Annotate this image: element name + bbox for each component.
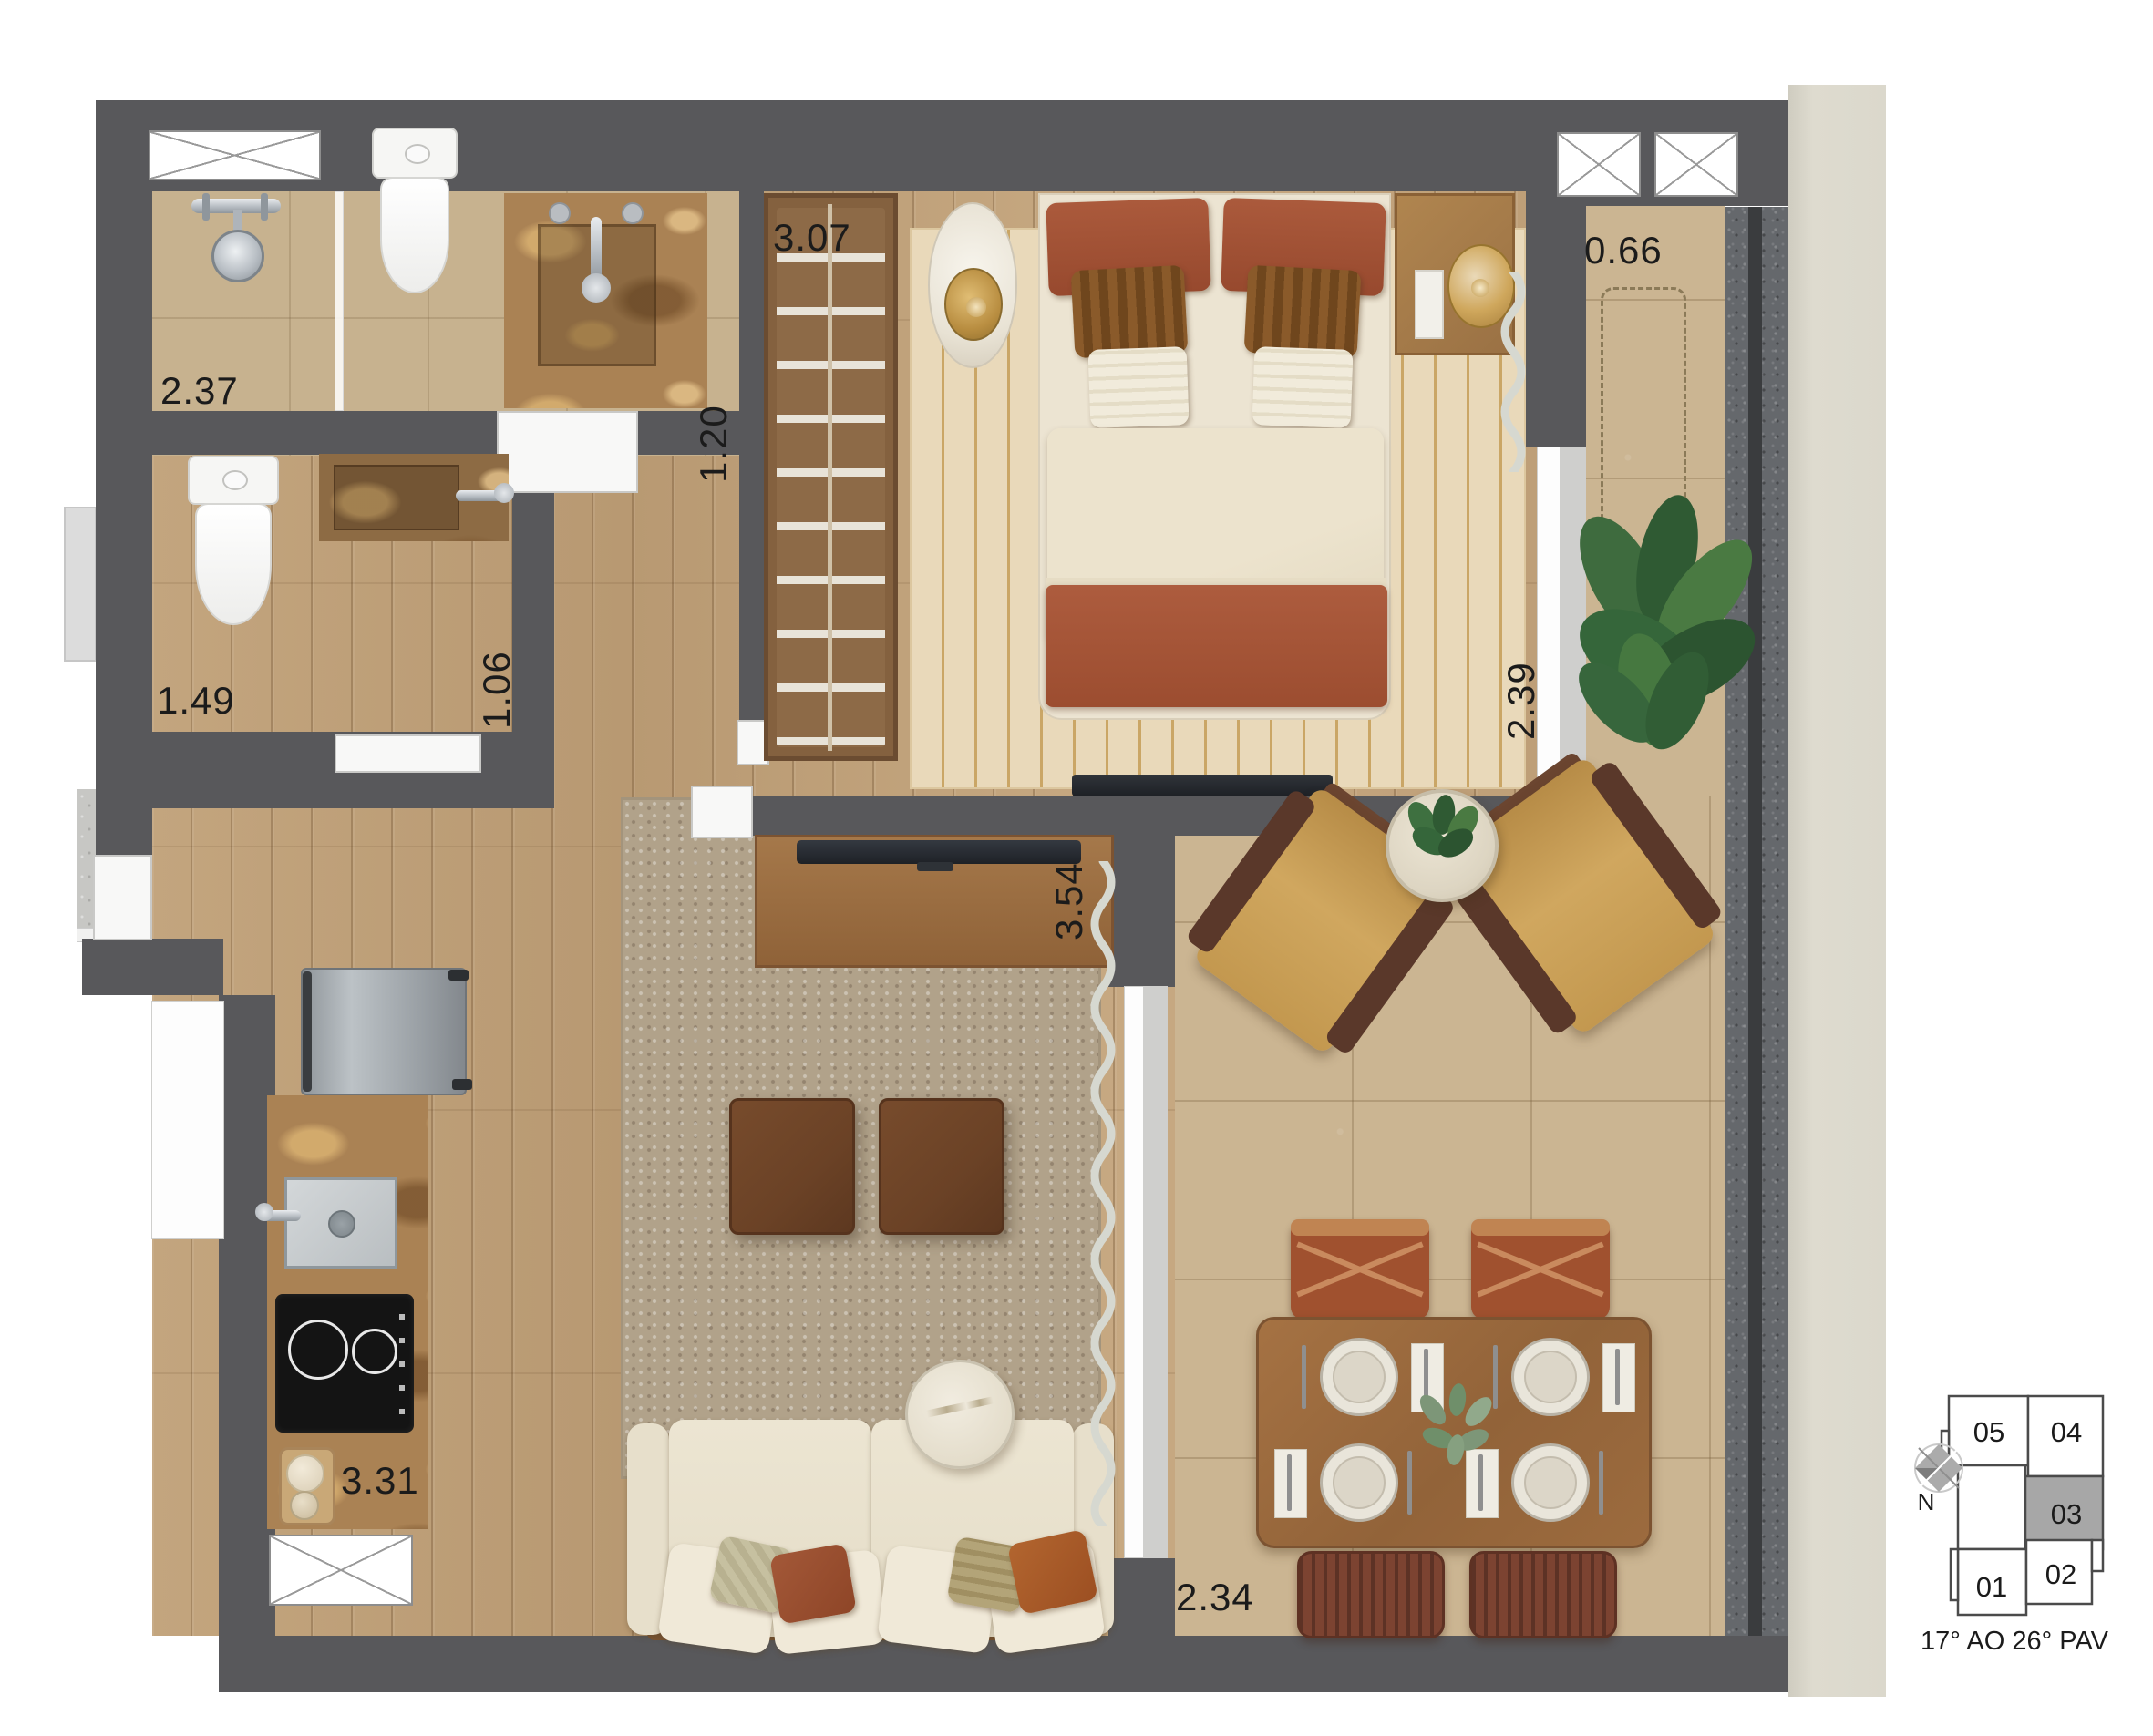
dim-bath-passage: 1.20 [695,405,733,483]
living-terrace-door-frame [1144,986,1168,1558]
dining-chair-top-right [1471,1219,1610,1320]
dim-closet: 3.07 [773,219,851,257]
vanity-faucet-base [582,273,611,303]
dim-terrace: 2.34 [1176,1578,1254,1617]
dining-chair-top-bar [1471,1219,1610,1236]
bathroom-door [497,411,638,493]
keyplan-unit-02-step [2092,1540,2103,1571]
shower-glass-divider [335,191,344,411]
floor-plan-page: 2.37 1.20 3.07 0.66 1.49 1.06 3.54 2.39 … [0,0,2153,1736]
shaft-box-kitchen [269,1535,413,1606]
fridge [301,968,467,1095]
shower-hook-left [202,193,210,221]
facade-granite-groove [1748,207,1762,1692]
keyplan-caption: 17° AO 26° PAV [1921,1627,2109,1656]
toilet-suite-bowl [380,177,449,293]
keyplan-north-label: N [1918,1488,1935,1515]
bedroom-balcony-glass-door [1537,447,1561,796]
bedroom-curtain [1495,272,1531,472]
keyplan-unit-label: 04 [2051,1416,2082,1448]
dim-living: 3.54 [1050,862,1088,940]
kitchen-window [151,1001,224,1239]
keyplan: 05 04 03 02 01 N 17° AO 26° PAV [1901,1378,2128,1669]
keyplan-unit-label: 02 [2045,1558,2076,1590]
toilet-lavabo-bowl [195,503,272,625]
dim-shower: 2.37 [160,372,239,410]
dinner-plate-inner [1524,1351,1577,1403]
wall-balcony-stub [1526,191,1586,447]
dinner-plate-inner [1524,1456,1577,1509]
bed-pillow-pattern-left [1071,265,1189,358]
shaft-box-bathroom [149,130,321,180]
wall-terrace-stub-bottom [1108,1558,1175,1637]
spoon [1615,1349,1620,1405]
kitchen-bowl-small [290,1491,319,1520]
dinner-plate-inner [1333,1351,1386,1403]
bed-throw [1046,585,1387,707]
keyplan-compass [1915,1444,1962,1492]
toilet-lavabo-button [222,470,248,490]
fork [1302,1345,1306,1409]
wall-bath-closet-divider [739,191,764,761]
shaft-box-balcony-2 [1654,132,1738,197]
sofa [627,1414,1114,1642]
lavabo-basin [334,465,459,530]
bed-pillow-white-left [1088,346,1190,428]
keyplan-corridor-shape [1958,1465,2025,1549]
lavabo-door [335,734,481,773]
bed [1038,193,1391,720]
wall-left [96,100,152,939]
pouf-left [729,1098,855,1235]
fridge-hinge-bottom [452,1079,472,1090]
vanity-knob-right [622,202,644,224]
wardrobe-rail [828,204,832,751]
living-terrace-glass-door [1124,986,1144,1558]
dining-chair-top-bar [1291,1219,1429,1236]
living-tv [797,840,1081,864]
spoon [1478,1454,1483,1511]
living-curtain [1085,861,1121,1526]
dim-kitchen: 3.31 [341,1462,419,1500]
dining-bench-right [1469,1551,1617,1638]
wall-bath-south-left [152,411,497,455]
toilet-suite-button [405,144,430,164]
living-tv-mount [917,862,953,871]
kitchen-bowl-large [286,1454,324,1493]
shower-head [211,230,264,282]
kitchen-sink-drain [328,1210,355,1238]
pouf-right [879,1098,1004,1235]
bed-pillow-white-right [1252,346,1354,428]
bed-pillow-pattern-right [1244,265,1362,358]
shower-hook-right [261,193,268,221]
fridge-handle [303,971,312,1092]
cooktop-burner-small [352,1329,397,1374]
sofa-side-table [905,1360,1015,1469]
dim-lavabo: 1.49 [157,682,235,720]
lavabo-faucet-base [494,483,514,503]
dim-lavabo-width: 1.06 [478,651,516,729]
sofa-pillow-rust [769,1543,857,1624]
keyplan-unit-label: 01 [1976,1571,2007,1603]
dining-table [1256,1317,1652,1548]
dining-bench-left [1297,1551,1445,1638]
fork [1493,1345,1498,1409]
vanity-knob-left [549,202,571,224]
dinner-plate-inner [1333,1456,1386,1509]
nightstand-switch [1415,270,1444,339]
dim-bedroom: 2.39 [1502,662,1540,740]
dining-chair-top-left [1291,1219,1429,1320]
keyplan-unit-01-notch [1951,1549,1958,1600]
nightstand-lamp-bulb [1471,279,1489,297]
wall-entry-jog [82,939,223,995]
cooktop-controls [399,1314,405,1414]
facade-column [1788,85,1886,1697]
exterior-neighbor-window [64,507,97,662]
entry-door [93,855,152,940]
cooktop-burner-large [288,1320,348,1380]
spoon [1287,1454,1292,1511]
shaft-box-balcony-1 [1557,132,1641,197]
fork [1599,1451,1603,1515]
pendant-lamp-bulb [966,297,986,317]
keyplan-unit-label: 05 [1973,1416,2004,1448]
wall-lavabo-right [512,453,554,732]
keyplan-unit-label: 03 [2051,1498,2082,1530]
kitchen-faucet-base [255,1203,273,1221]
hall-door-jamb [691,786,753,838]
fridge-hinge-top [448,970,469,981]
dim-balcony: 0.66 [1584,231,1663,270]
fork [1407,1451,1412,1515]
